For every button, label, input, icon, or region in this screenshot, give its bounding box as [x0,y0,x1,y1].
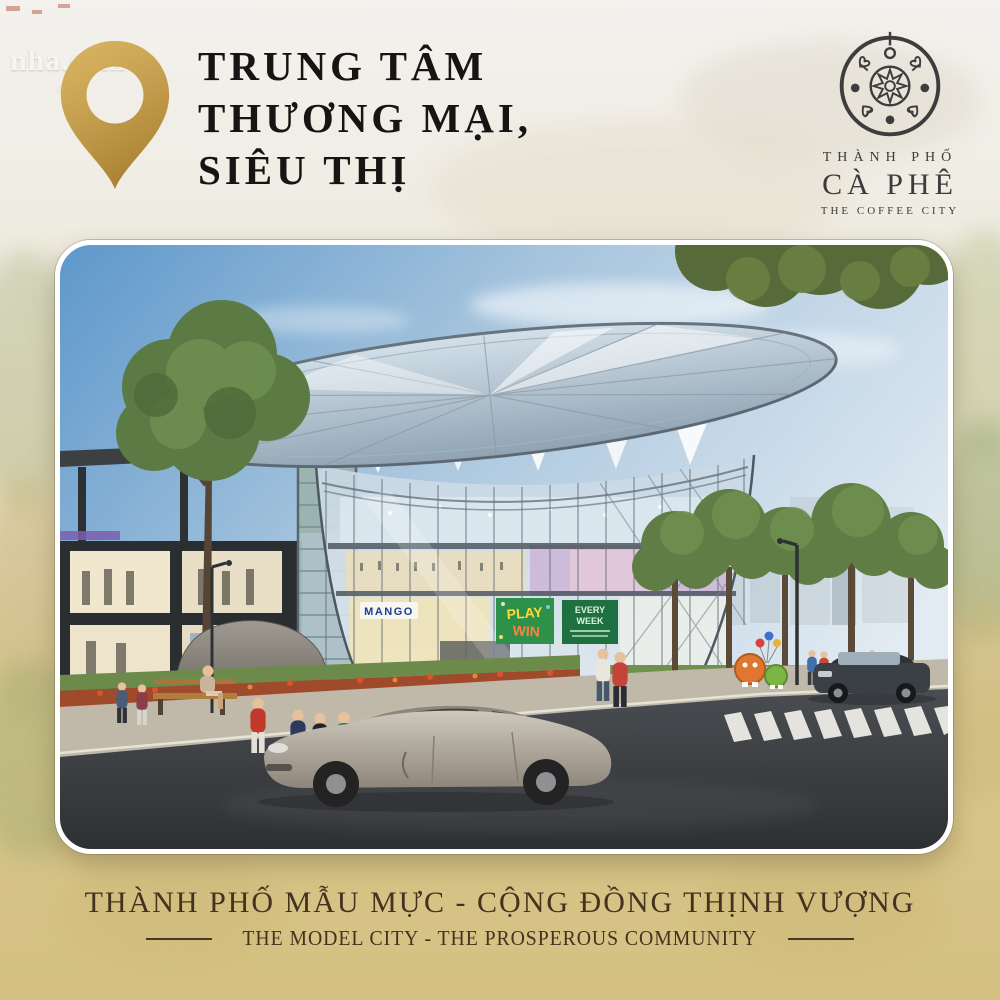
logo-text-top: THÀNH PHỐ [798,150,982,166]
play-win-banner: PLAY WIN [496,598,554,644]
tagline-english-text: THE MODEL CITY - THE PROSPEROUS COMMUNIT… [243,926,758,951]
tagline-english: THE MODEL CITY - THE PROSPEROUS COMMUNIT… [0,926,1000,951]
mango-sign: MANGO [360,602,418,619]
logo-text-sub: THE COFFEE CITY [798,205,982,217]
promo-board: EVERY WEEK [562,600,618,644]
play-sign-line1: PLAY [506,604,544,623]
separator-line-right [788,938,854,940]
separator-line-left [146,938,212,940]
play-sign-line2: WIN [512,622,540,639]
title-line-1: TRUNG TÂM [198,40,532,92]
title-line-2: THƯƠNG MẠI, [198,92,532,144]
mall-render-photo: MANGO PLAY WIN EVERY WEEK [55,240,953,854]
poster-canvas: nha.com Gre TRUNG TÂM THƯƠNG MẠI, SIÊU T… [0,0,1000,1000]
logo-text-main: CÀ PHÊ [798,168,982,202]
promo-board-line1: EVERY [575,605,605,615]
coffee-city-logo: THÀNH PHỐ CÀ PHÊ THE COFFEE CITY [798,28,982,217]
promo-board-line2: WEEK [577,616,605,626]
mall-render-scene: MANGO PLAY WIN EVERY WEEK [60,245,948,849]
tagline-vietnamese: THÀNH PHỐ MẪU MỰC - CỘNG ĐỒNG THỊNH VƯỢN… [0,886,1000,920]
location-pin-icon [58,36,172,194]
coffee-city-emblem-icon [832,28,948,144]
title-line-3: SIÊU THỊ [198,144,532,196]
mango-sign-text: MANGO [364,606,414,618]
page-title: TRUNG TÂM THƯƠNG MẠI, SIÊU THỊ [198,40,532,196]
